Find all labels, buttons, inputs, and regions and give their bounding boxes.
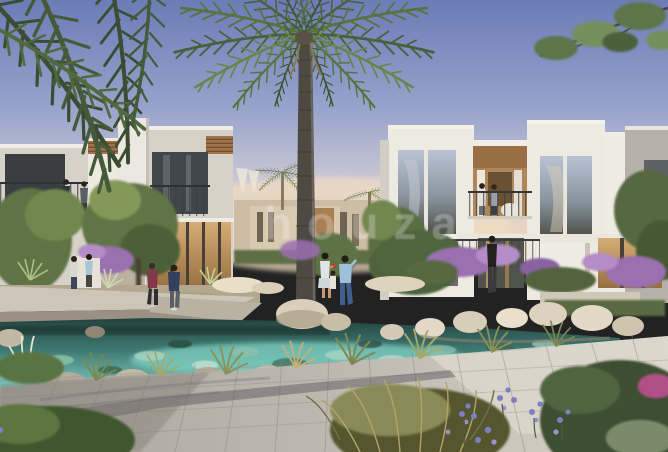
recessed-balcony [468,146,532,219]
balcony-railing [468,192,532,218]
scene-canvas [0,0,668,452]
wood-slat-band [206,136,233,154]
property-photo: houza [0,0,668,452]
person-walking-right [487,236,497,293]
standing-couple-left [70,254,100,289]
